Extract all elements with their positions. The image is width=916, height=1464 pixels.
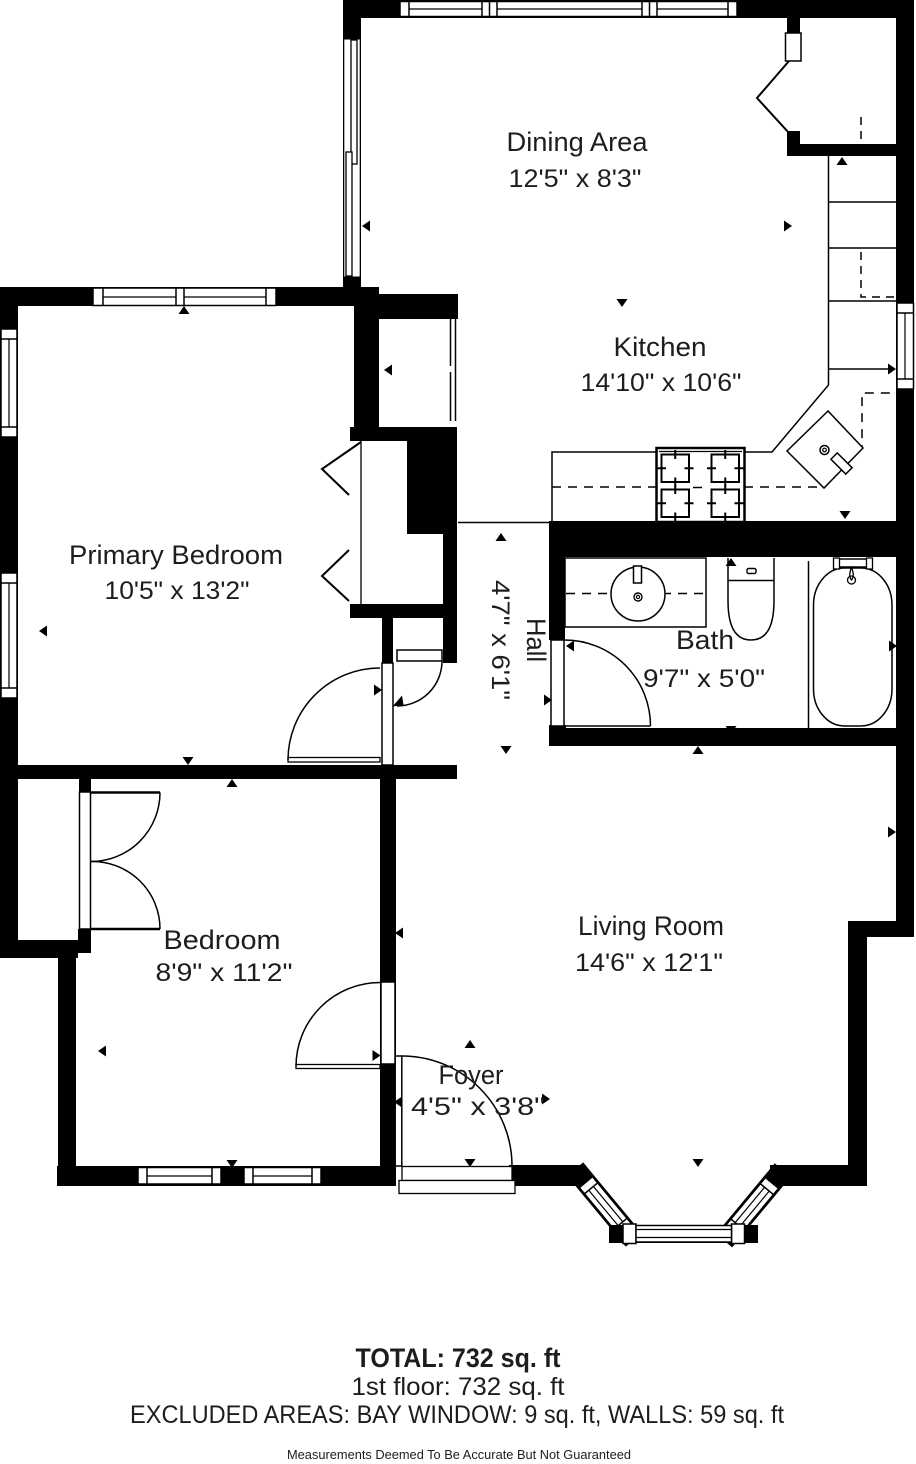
svg-text:9'7" x 5'0": 9'7" x 5'0": [643, 665, 765, 693]
svg-text:8'9" x 11'2": 8'9" x 11'2": [156, 959, 293, 987]
svg-text:Primary Bedroom: Primary Bedroom: [69, 540, 283, 570]
svg-text:Dining Area: Dining Area: [507, 127, 649, 157]
svg-text:Bedroom: Bedroom: [164, 925, 281, 955]
svg-text:12'5" x 8'3": 12'5" x 8'3": [509, 165, 642, 193]
svg-text:Living Room: Living Room: [578, 911, 724, 941]
svg-text:TOTAL: 732 sq. ft: TOTAL: 732 sq. ft: [356, 1343, 561, 1373]
svg-text:4'5" x 3'8": 4'5" x 3'8": [411, 1093, 545, 1121]
svg-text:1st floor: 732 sq. ft: 1st floor: 732 sq. ft: [352, 1373, 565, 1401]
svg-text:Measurements Deemed To Be Accu: Measurements Deemed To Be Accurate But N…: [287, 1447, 631, 1462]
svg-text:14'6" x 12'1": 14'6" x 12'1": [575, 949, 723, 977]
svg-text:Hall: Hall: [521, 618, 551, 662]
svg-text:14'10" x 10'6": 14'10" x 10'6": [581, 369, 742, 397]
svg-text:4'7" x 6'1": 4'7" x 6'1": [486, 580, 514, 700]
svg-text:Foyer: Foyer: [439, 1060, 504, 1090]
svg-text:10'5" x 13'2": 10'5" x 13'2": [105, 577, 250, 605]
svg-text:Bath: Bath: [676, 625, 734, 655]
svg-text:EXCLUDED AREAS: BAY WINDOW: 9: EXCLUDED AREAS: BAY WINDOW: 9 sq. ft, WA…: [130, 1401, 784, 1429]
svg-text:Kitchen: Kitchen: [614, 332, 707, 362]
